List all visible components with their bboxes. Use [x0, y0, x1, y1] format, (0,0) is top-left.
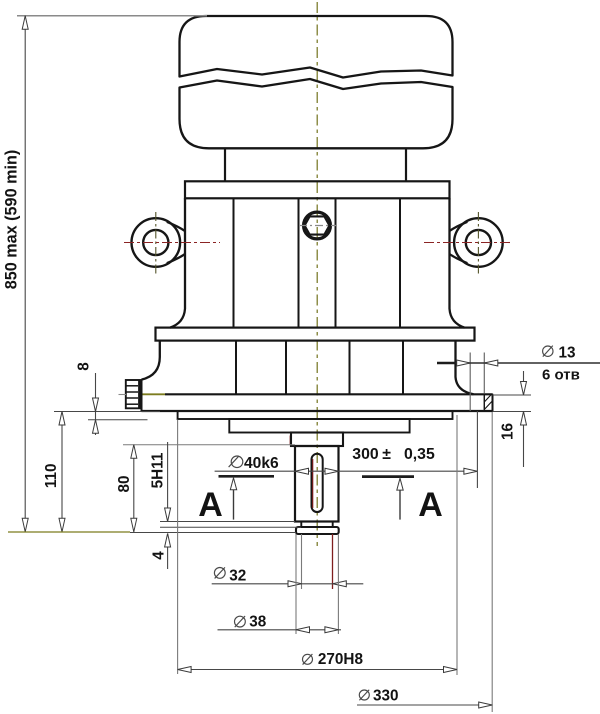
svg-text:16: 16	[500, 423, 517, 440]
svg-text:±: ±	[382, 446, 391, 463]
svg-text:4: 4	[151, 551, 168, 560]
svg-text:8: 8	[76, 362, 93, 371]
svg-text:5H11: 5H11	[150, 452, 167, 488]
svg-text:80: 80	[116, 475, 133, 492]
svg-text:A: A	[418, 486, 443, 524]
svg-text:A: A	[198, 486, 223, 524]
svg-text:40k6: 40k6	[244, 455, 279, 472]
svg-text:270H8: 270H8	[318, 651, 364, 668]
svg-text:13: 13	[559, 344, 576, 361]
svg-text:850 max (590 min): 850 max (590 min)	[3, 150, 21, 289]
svg-text:6 отв: 6 отв	[542, 367, 580, 384]
svg-text:38: 38	[249, 614, 267, 631]
svg-text:330: 330	[373, 687, 399, 704]
svg-text:32: 32	[229, 567, 246, 584]
svg-text:0,35: 0,35	[404, 446, 435, 463]
svg-text:300: 300	[352, 446, 379, 463]
svg-text:110: 110	[43, 463, 60, 488]
